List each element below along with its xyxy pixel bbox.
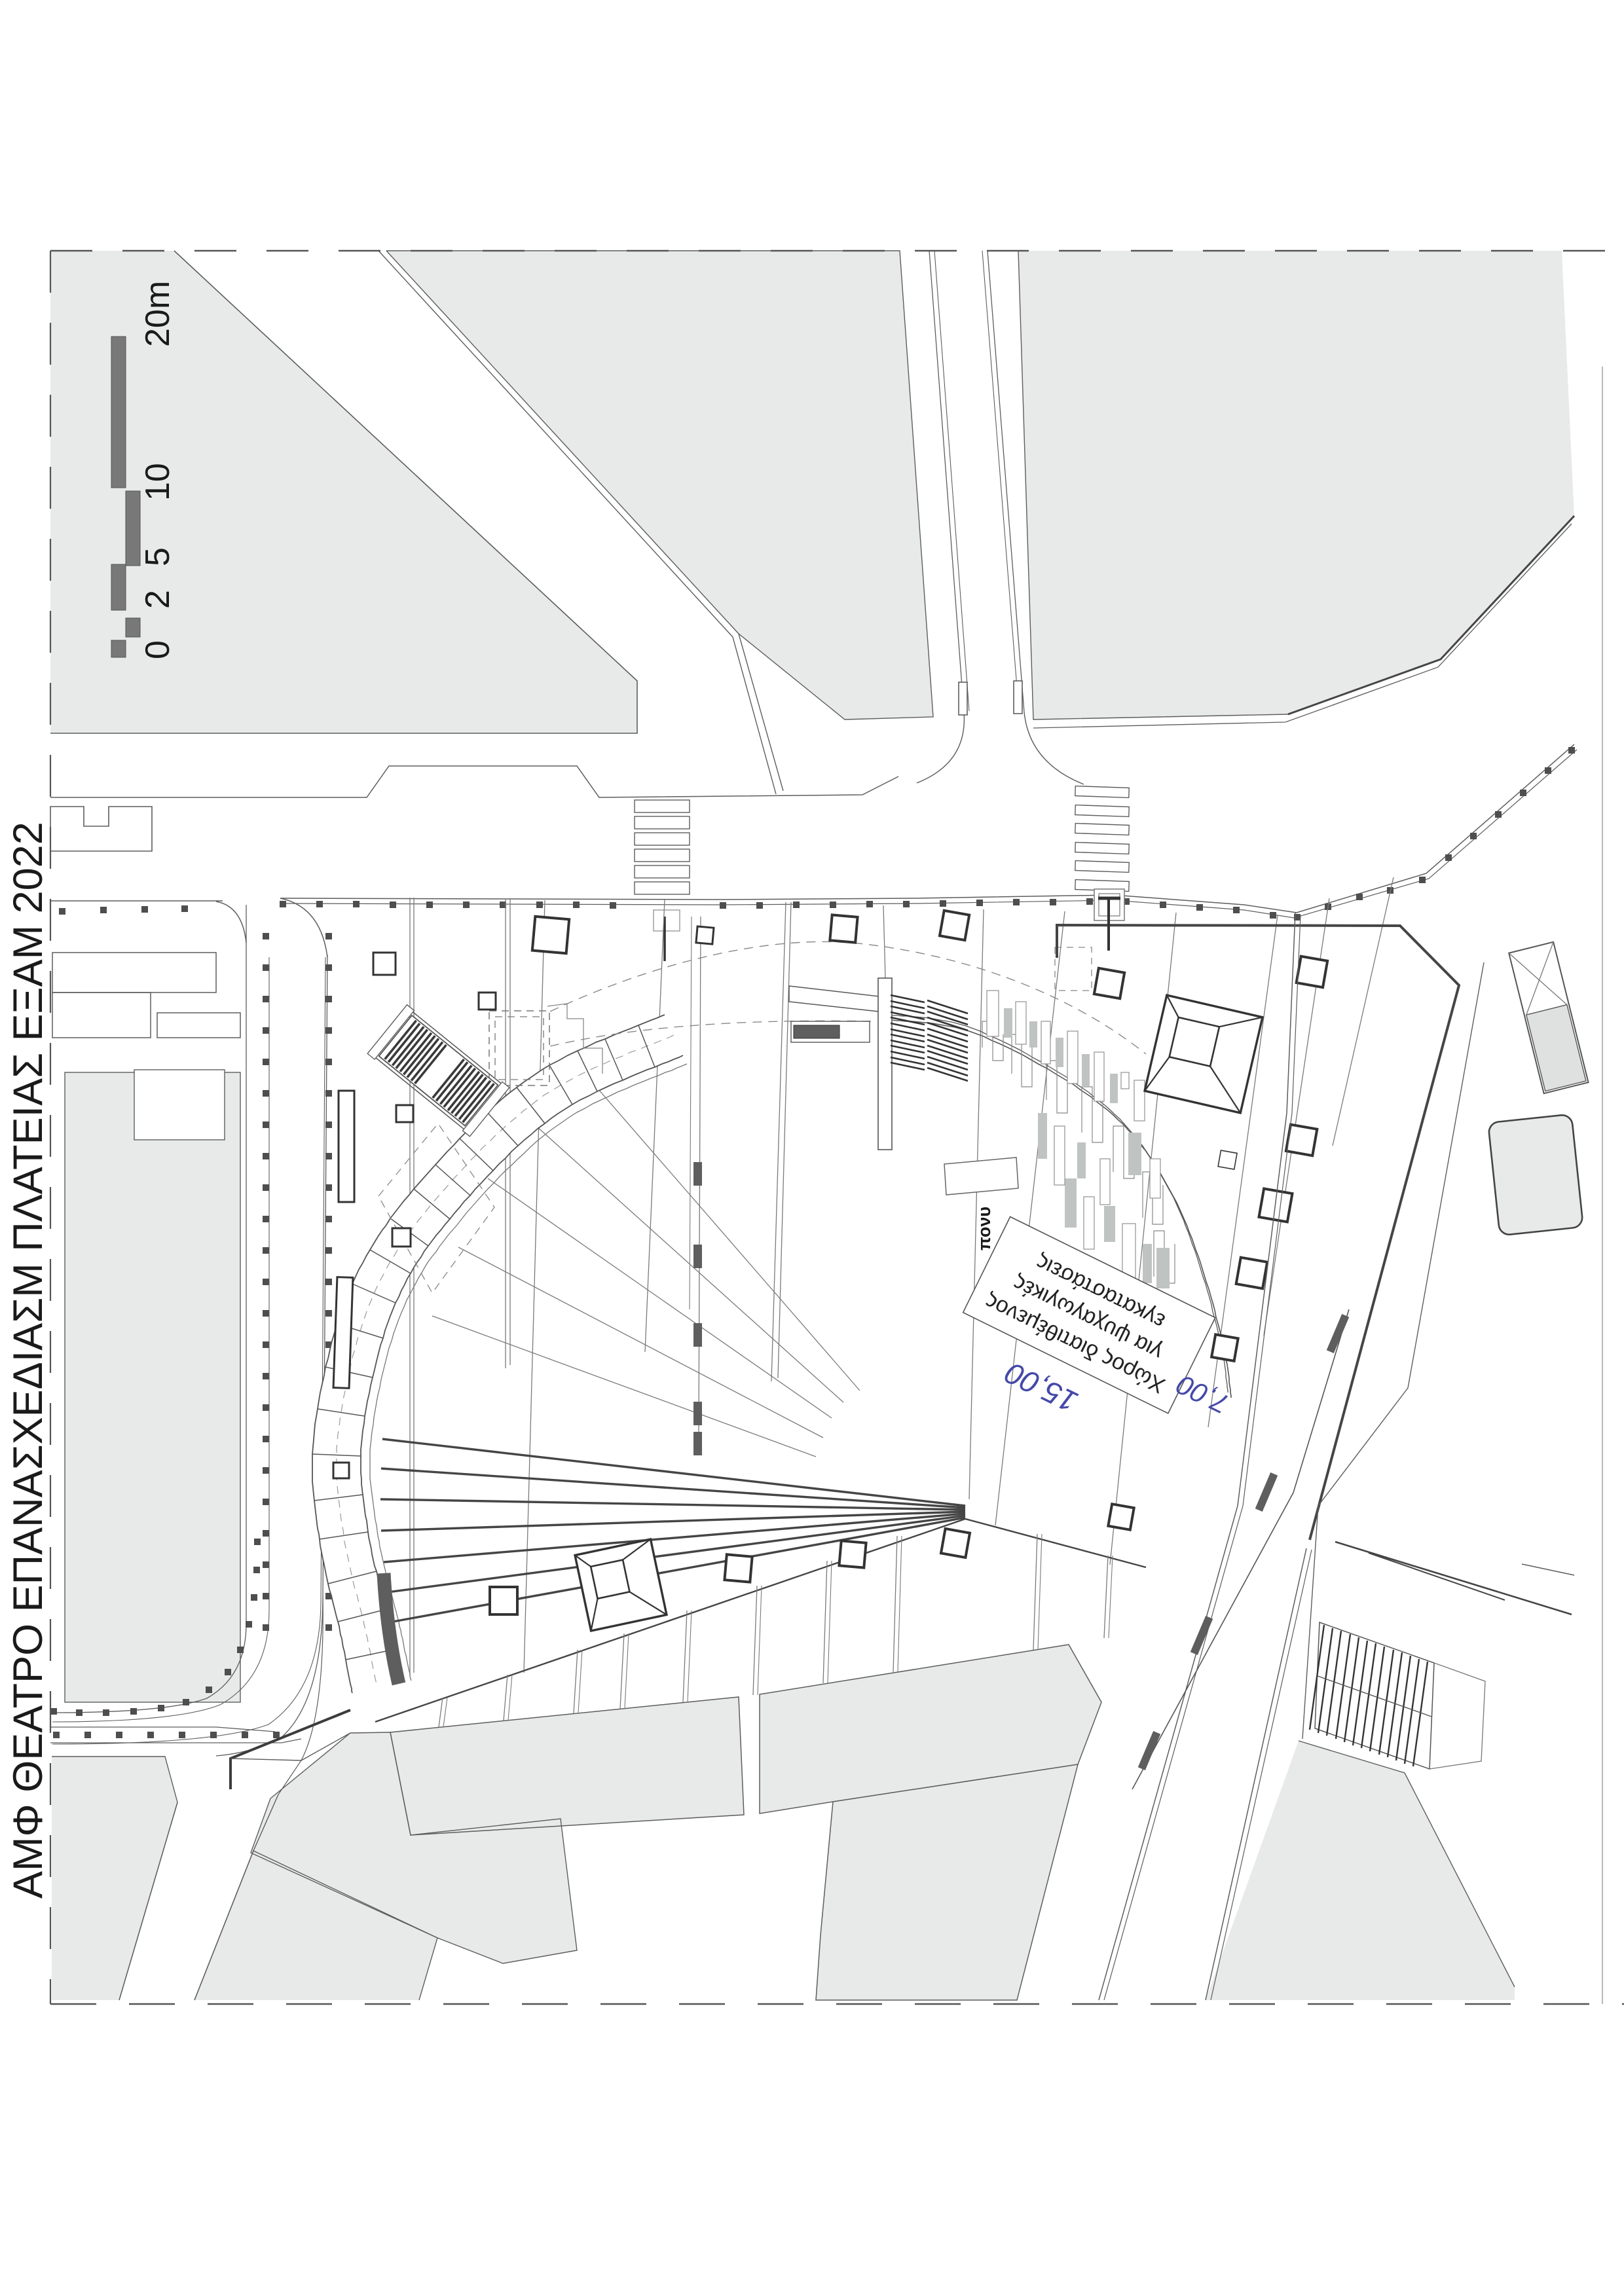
svg-text:2: 2 [139, 590, 177, 609]
svg-text:πονυ: πονυ [974, 1207, 994, 1250]
svg-text:ΑΜΦ ΘΕΑΤΡΟ ΕΠΑΝΑΣΧΕΔΙΑΣΜ ΠΛΑΤΕ: ΑΜΦ ΘΕΑΤΡΟ ΕΠΑΝΑΣΧΕΔΙΑΣΜ ΠΛΑΤΕΙΑΣ ΕΞΑΜ 2… [5, 822, 51, 1899]
svg-text:5: 5 [139, 547, 177, 566]
svg-text:10: 10 [139, 463, 177, 501]
svg-text:20m: 20m [139, 281, 177, 347]
svg-text:0: 0 [139, 640, 177, 659]
